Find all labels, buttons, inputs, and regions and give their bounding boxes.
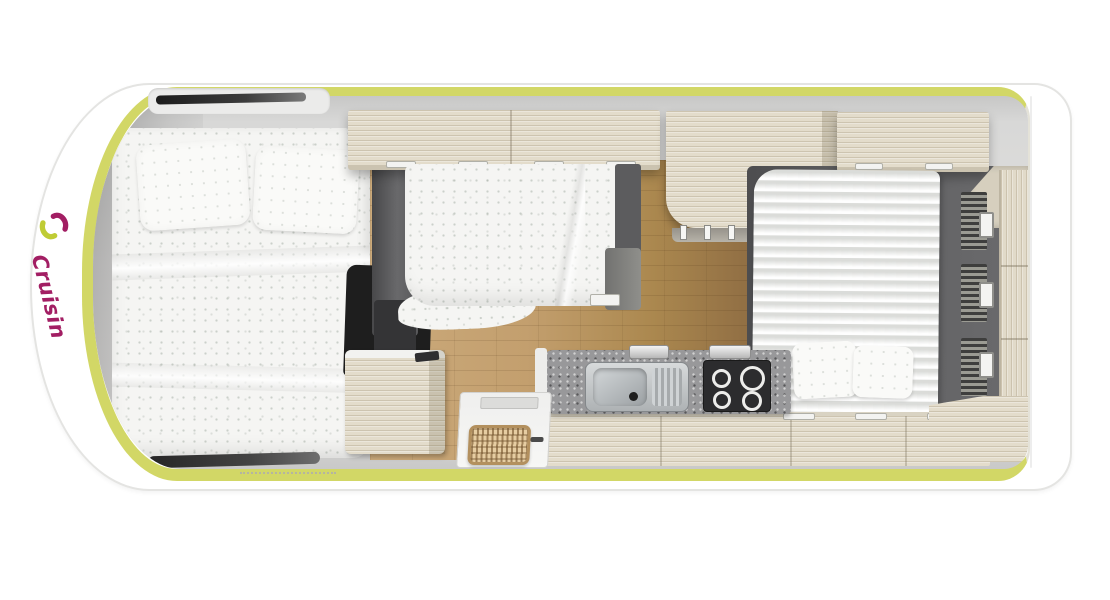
vehicle-interior: [93, 96, 1028, 469]
underbody-dotted-line: [240, 472, 336, 474]
front-bed-duvet-fold-2: [112, 363, 371, 394]
cabinet-handle-pin: [680, 225, 687, 240]
cabinet-divider: [790, 416, 792, 466]
rear-wardrobe-strip: [999, 170, 1028, 410]
wardrobe-divider: [1001, 265, 1028, 267]
front-bed-pillow-right: [252, 145, 360, 234]
cabinet-divider: [905, 416, 907, 466]
entry-doormat: [467, 425, 531, 465]
bench-handle: [855, 413, 887, 420]
storage-cabinet-block: [345, 350, 445, 454]
rear-bed-pillow-left: [792, 340, 859, 399]
rear-bed-pillow-right: [852, 345, 914, 399]
front-bed-duvet-fold: [112, 246, 371, 281]
sink-faucet: [629, 345, 669, 359]
wardrobe-drawer-handle: [979, 212, 994, 238]
hob-burner: [713, 391, 731, 409]
locker-handle: [855, 163, 883, 170]
rear-wall-shadow: [1030, 96, 1032, 468]
hob-burner: [740, 366, 765, 391]
kitchen-sink: [585, 362, 689, 412]
overhead-locker-rear-top: [837, 112, 989, 172]
doormat-handle: [530, 437, 543, 442]
cabinet-handle-pin: [704, 225, 711, 240]
four-burner-hob: [703, 360, 771, 412]
locker-divider: [510, 110, 512, 165]
bed-latch: [590, 294, 620, 306]
wardrobe-drawer-handle: [979, 282, 994, 308]
entry-door-area: [456, 392, 552, 468]
front-bed-pillow-left: [135, 138, 251, 231]
overhead-lockers-middle: [348, 110, 660, 170]
cabinet-divider: [660, 416, 662, 466]
hob-burner: [712, 369, 731, 388]
skylight-glass: [156, 92, 306, 104]
bottom-cabinet-band: [543, 412, 990, 466]
cabinet-side-face: [429, 350, 445, 454]
wardrobe-divider: [1001, 338, 1028, 340]
sink-drainer: [652, 368, 682, 406]
sink-bowl: [593, 368, 647, 406]
front-bed: [112, 128, 370, 458]
floorplan-canvas: Cruisin: [0, 0, 1110, 600]
wardrobe-drawer-handle: [979, 352, 994, 378]
rear-corner-cabinet: [929, 396, 1028, 462]
cab-skylight: [148, 88, 330, 114]
cabinet-handle-pin: [728, 225, 735, 240]
dinette-bed-crease: [555, 164, 585, 306]
hob-pan-rail: [709, 345, 751, 359]
sink-drain: [629, 392, 638, 401]
hob-burner: [742, 391, 762, 411]
bench-handle: [783, 413, 815, 420]
locker-handle: [925, 163, 953, 170]
door-hardware: [480, 397, 539, 409]
kitchen-counter: [543, 350, 791, 414]
